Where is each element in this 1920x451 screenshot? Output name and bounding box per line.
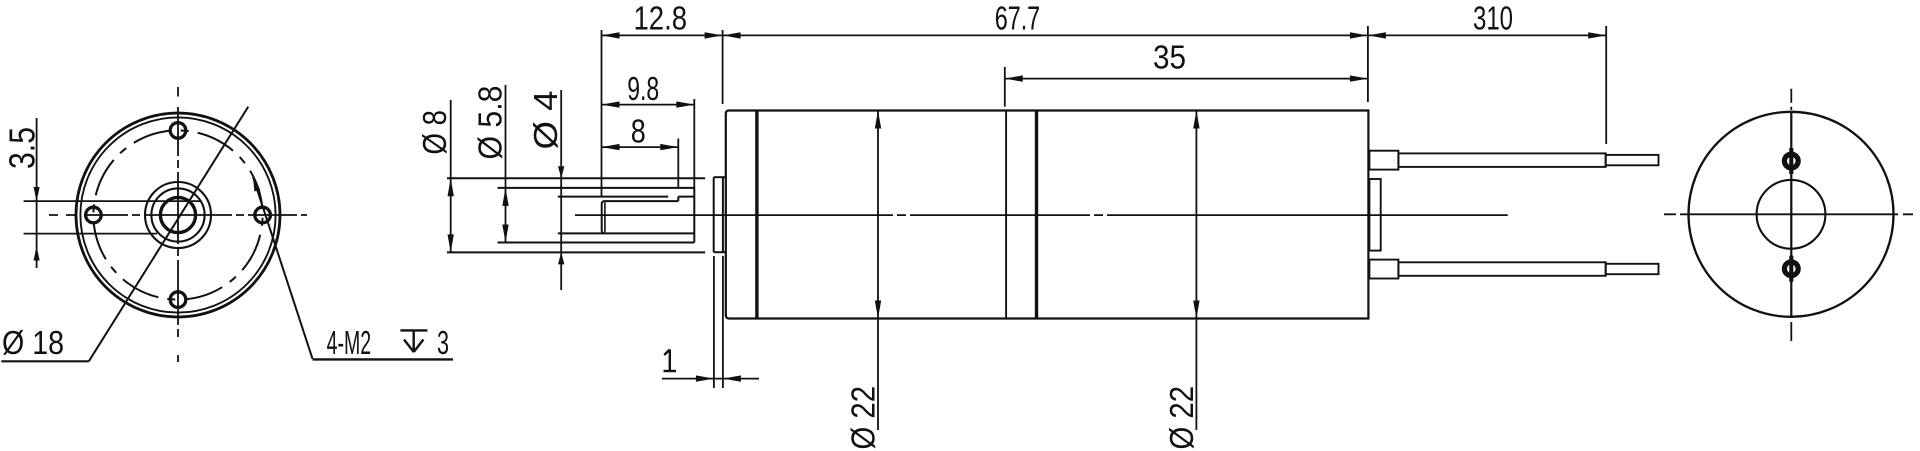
svg-text:3.5: 3.5: [2, 127, 43, 169]
svg-text:35: 35: [1153, 39, 1186, 76]
svg-text:67.7: 67.7: [995, 0, 1040, 37]
svg-text:Ø 22: Ø 22: [1163, 386, 1200, 450]
svg-text:4-M2: 4-M2: [327, 324, 372, 361]
svg-text:Ø 5.8: Ø 5.8: [472, 86, 509, 160]
svg-text:Ø 22: Ø 22: [845, 386, 882, 450]
svg-text:Ø 4: Ø 4: [527, 91, 564, 150]
svg-text:9.8: 9.8: [627, 70, 659, 107]
svg-text:12.8: 12.8: [634, 0, 688, 37]
svg-text:Ø 18: Ø 18: [2, 324, 64, 361]
svg-text:310: 310: [1473, 0, 1513, 37]
svg-text:Ø 8: Ø 8: [416, 110, 453, 155]
svg-text:3: 3: [437, 324, 449, 361]
svg-text:8: 8: [631, 113, 646, 150]
